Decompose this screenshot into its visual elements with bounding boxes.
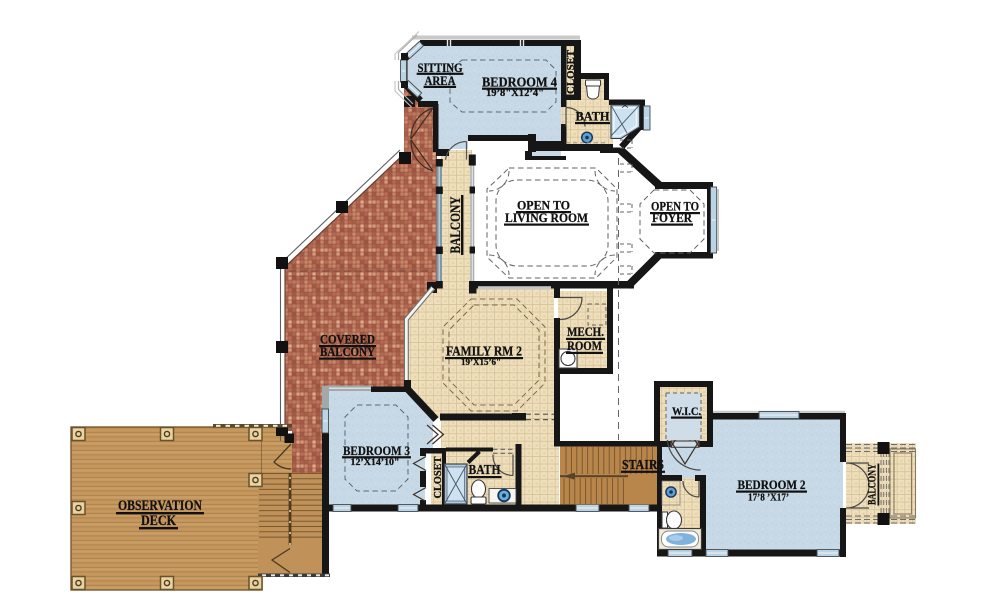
svg-text:17’8 ’X17’: 17’8 ’X17’ <box>748 493 789 504</box>
svg-text:W.I.C.: W.I.C. <box>672 404 701 418</box>
svg-text:LIVING ROOM: LIVING ROOM <box>505 210 588 225</box>
svg-text:ROOM: ROOM <box>567 338 602 353</box>
svg-text:DECK: DECK <box>141 513 176 529</box>
svg-text:BEDROOM 3: BEDROOM 3 <box>343 444 410 458</box>
svg-text:FAMILY RM 2: FAMILY RM 2 <box>446 344 522 359</box>
svg-text:19’8"X12’4": 19’8"X12’4" <box>486 88 544 99</box>
svg-text:BALCONY: BALCONY <box>320 344 376 359</box>
svg-text:FOYER: FOYER <box>652 211 693 225</box>
svg-text:19’X15’6": 19’X15’6" <box>461 358 501 368</box>
svg-text:CLOSET: CLOSET <box>433 456 444 498</box>
svg-text:12’X14’10": 12’X14’10" <box>351 458 400 468</box>
svg-text:MECH.: MECH. <box>567 324 604 339</box>
svg-text:OBSERVATION: OBSERVATION <box>118 498 202 514</box>
svg-text:BEDROOM 2: BEDROOM 2 <box>738 478 806 492</box>
svg-text:BATH: BATH <box>469 462 501 477</box>
svg-text:STAIRS: STAIRS <box>622 457 664 472</box>
svg-text:CLOSET: CLOSET <box>566 50 577 94</box>
svg-text:BALCONY: BALCONY <box>867 464 879 505</box>
svg-text:BATH: BATH <box>576 109 610 124</box>
